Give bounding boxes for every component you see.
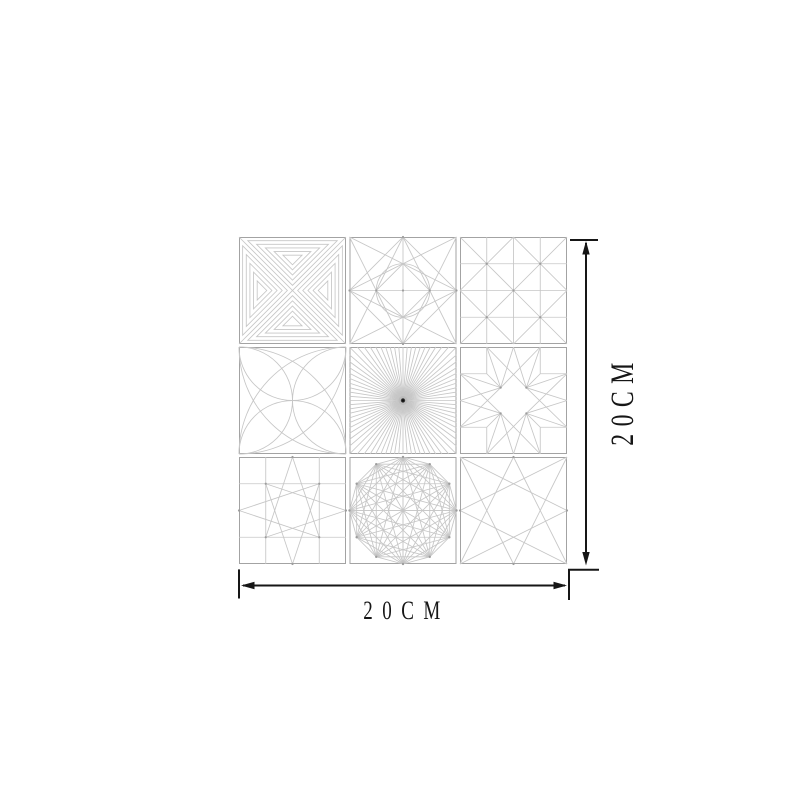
svg-text:20CM: 20CM <box>604 355 641 445</box>
svg-text:20CM: 20CM <box>363 596 450 625</box>
